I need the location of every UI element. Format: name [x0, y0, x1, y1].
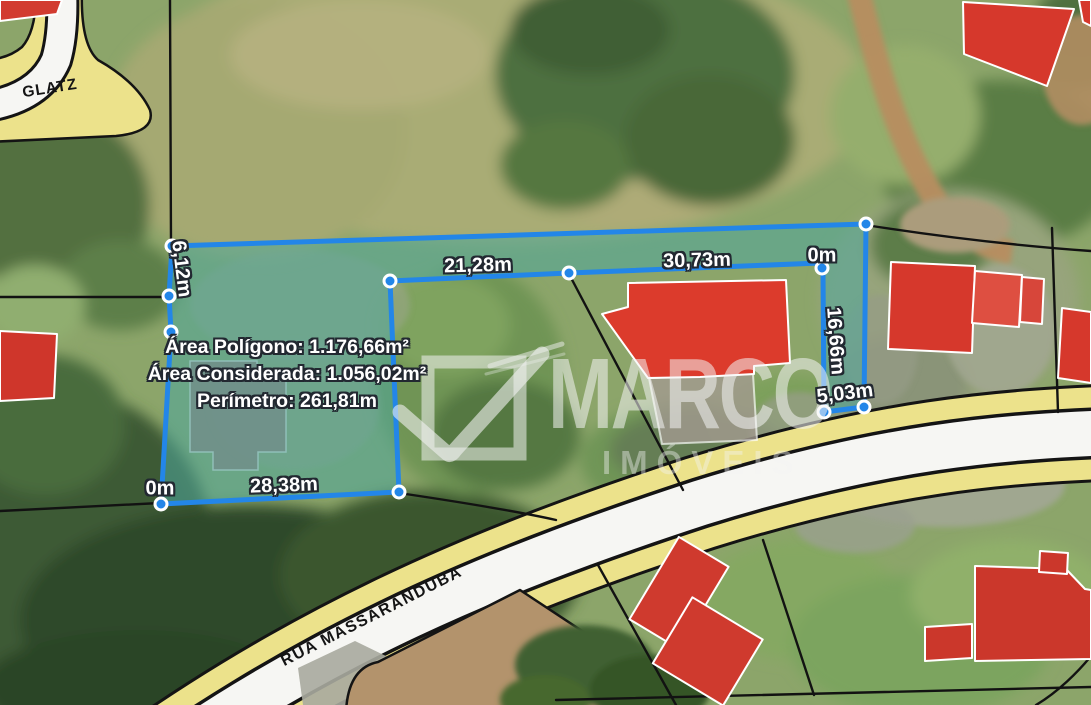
- segment-label-21-28m: 21,28m: [444, 254, 512, 279]
- stat-perimetro: Perímetro: 261,81m: [197, 390, 377, 413]
- segment-label-0m-top: 0m: [808, 245, 837, 268]
- segment-label-30-73m: 30,73m: [663, 249, 731, 274]
- house-roof-annex: [649, 374, 757, 444]
- segment-label-28-38m: 28,38m: [250, 473, 319, 498]
- house-footprint: [972, 271, 1022, 327]
- house-footprint: [925, 624, 972, 661]
- house-footprint: [0, 331, 57, 401]
- satellite-map: [0, 0, 1091, 705]
- vertex-handle[interactable]: [860, 218, 872, 230]
- segment-label-16-66m: 16,66m: [821, 306, 849, 375]
- map-canvas[interactable]: GLATZ RUA MASSARANDUBA MARCO IMÓVEIS Áre…: [0, 0, 1091, 705]
- stat-area-considerada: Área Considerada: 1.056,02m²: [148, 363, 427, 386]
- segment-label-0m-bottom: 0m: [146, 478, 175, 501]
- stat-area-poligono: Área Polígono: 1.176,66m²: [165, 336, 409, 359]
- vertex-handle[interactable]: [393, 486, 405, 498]
- vertex-handle[interactable]: [563, 267, 575, 279]
- house-footprint: [888, 262, 975, 353]
- vertex-handle[interactable]: [384, 275, 396, 287]
- house-footprint: [1020, 277, 1044, 324]
- house-footprint: [975, 566, 1091, 661]
- house-footprint: [1058, 308, 1091, 383]
- house-footprint: [1039, 551, 1068, 574]
